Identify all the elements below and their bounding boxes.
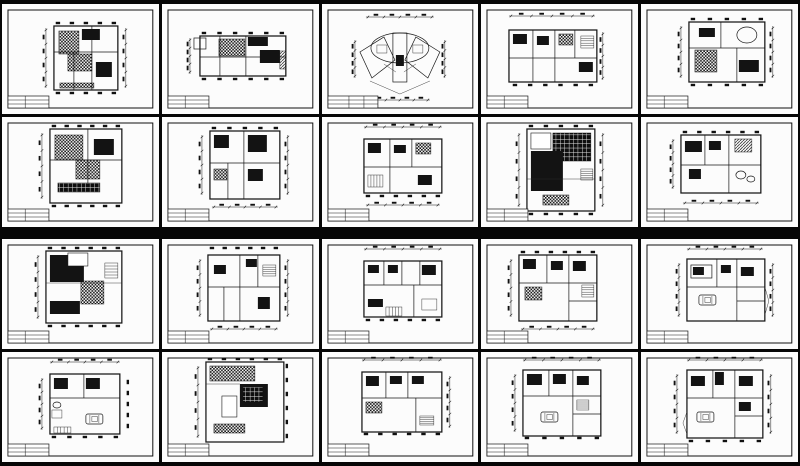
floor-plan-sheet-plan-06 (2, 117, 159, 227)
floor-plan-sheet-plan-09 (481, 117, 638, 227)
car-symbol (699, 295, 716, 305)
car-symbol (86, 414, 103, 424)
title-block (647, 331, 688, 343)
title-block (168, 444, 209, 456)
floor-plan-drawing (2, 239, 159, 349)
floor-plan-drawing (641, 352, 798, 462)
floor-plan-sheet-plan-18 (322, 352, 479, 462)
floor-plan-sheet-plan-01 (2, 4, 159, 114)
floor-plan-drawing (2, 4, 159, 114)
stair-symbol (54, 427, 71, 433)
floor-plan-drawing (162, 352, 319, 462)
stair-symbol (419, 416, 433, 425)
floor-plan-drawing (641, 117, 798, 227)
floor-plan-sheet-plan-14 (481, 239, 638, 349)
floor-plan-drawing (322, 117, 479, 227)
floor-plan-drawing (162, 117, 319, 227)
car-symbol (697, 412, 714, 422)
title-block (328, 444, 369, 456)
title-block (647, 96, 688, 108)
title-block (647, 209, 688, 221)
stair-symbol (581, 36, 594, 48)
floor-plan-drawing (481, 352, 638, 462)
floor-plan-drawing (481, 4, 638, 114)
floor-plan-sheet-plan-19 (481, 352, 638, 462)
floor-plan-sheet-plan-04 (481, 4, 638, 114)
floor-plan-sheet-plan-12 (162, 239, 319, 349)
title-block (487, 209, 528, 221)
sheet-row-4 (0, 352, 800, 462)
title-block (328, 209, 369, 221)
title-block (8, 209, 49, 221)
title-block (168, 96, 209, 108)
stair-symbol (263, 265, 276, 276)
floor-plan-drawing (322, 239, 479, 349)
floor-plan-sheet-plan-07 (162, 117, 319, 227)
floor-plan-sheet-plan-17 (162, 352, 319, 462)
stair-symbol (582, 285, 594, 297)
title-block (8, 96, 49, 108)
floor-plan-sheet-plan-20 (641, 352, 798, 462)
floor-plan-sheet-plan-11 (2, 239, 159, 349)
sheet-row-3 (0, 239, 800, 349)
title-block (487, 331, 528, 343)
stair-symbol (105, 263, 118, 278)
floor-plan-sheet-plan-10 (641, 117, 798, 227)
floor-plan-drawing (641, 239, 798, 349)
title-block (8, 444, 49, 456)
title-block (328, 96, 378, 108)
floor-plan-sheet-plan-03 (322, 4, 479, 114)
title-block (487, 444, 528, 456)
floor-plan-drawing (2, 352, 159, 462)
floor-plan-drawing (322, 4, 479, 114)
drawing-board (0, 0, 800, 466)
floor-plan-drawing (322, 352, 479, 462)
floor-plan-sheet-plan-02 (162, 4, 319, 114)
floor-plan-sheet-plan-15 (641, 239, 798, 349)
title-block (328, 331, 369, 343)
title-block (8, 331, 49, 343)
floor-plan-drawing (481, 117, 638, 227)
floor-plan-drawing (162, 4, 319, 114)
floor-plan-drawing (162, 239, 319, 349)
stair-symbol (368, 175, 383, 187)
title-block (487, 96, 528, 108)
title-block (168, 331, 209, 343)
car-symbol (541, 412, 558, 422)
floor-plan-sheet-plan-13 (322, 239, 479, 349)
title-block (168, 209, 209, 221)
sheet-row-2 (0, 117, 800, 227)
stair-symbol (577, 400, 589, 410)
stair-symbol (581, 169, 593, 180)
floor-plan-sheet-plan-16 (2, 352, 159, 462)
floor-plan-sheet-plan-08 (322, 117, 479, 227)
stair-symbol (386, 307, 402, 316)
sheet-grid (0, 4, 800, 462)
sheet-row-1 (0, 4, 800, 114)
floor-plan-drawing (2, 117, 159, 227)
floor-plan-sheet-plan-05 (641, 4, 798, 114)
title-block (647, 444, 688, 456)
floor-plan-drawing (481, 239, 638, 349)
floor-plan-drawing (641, 4, 798, 114)
